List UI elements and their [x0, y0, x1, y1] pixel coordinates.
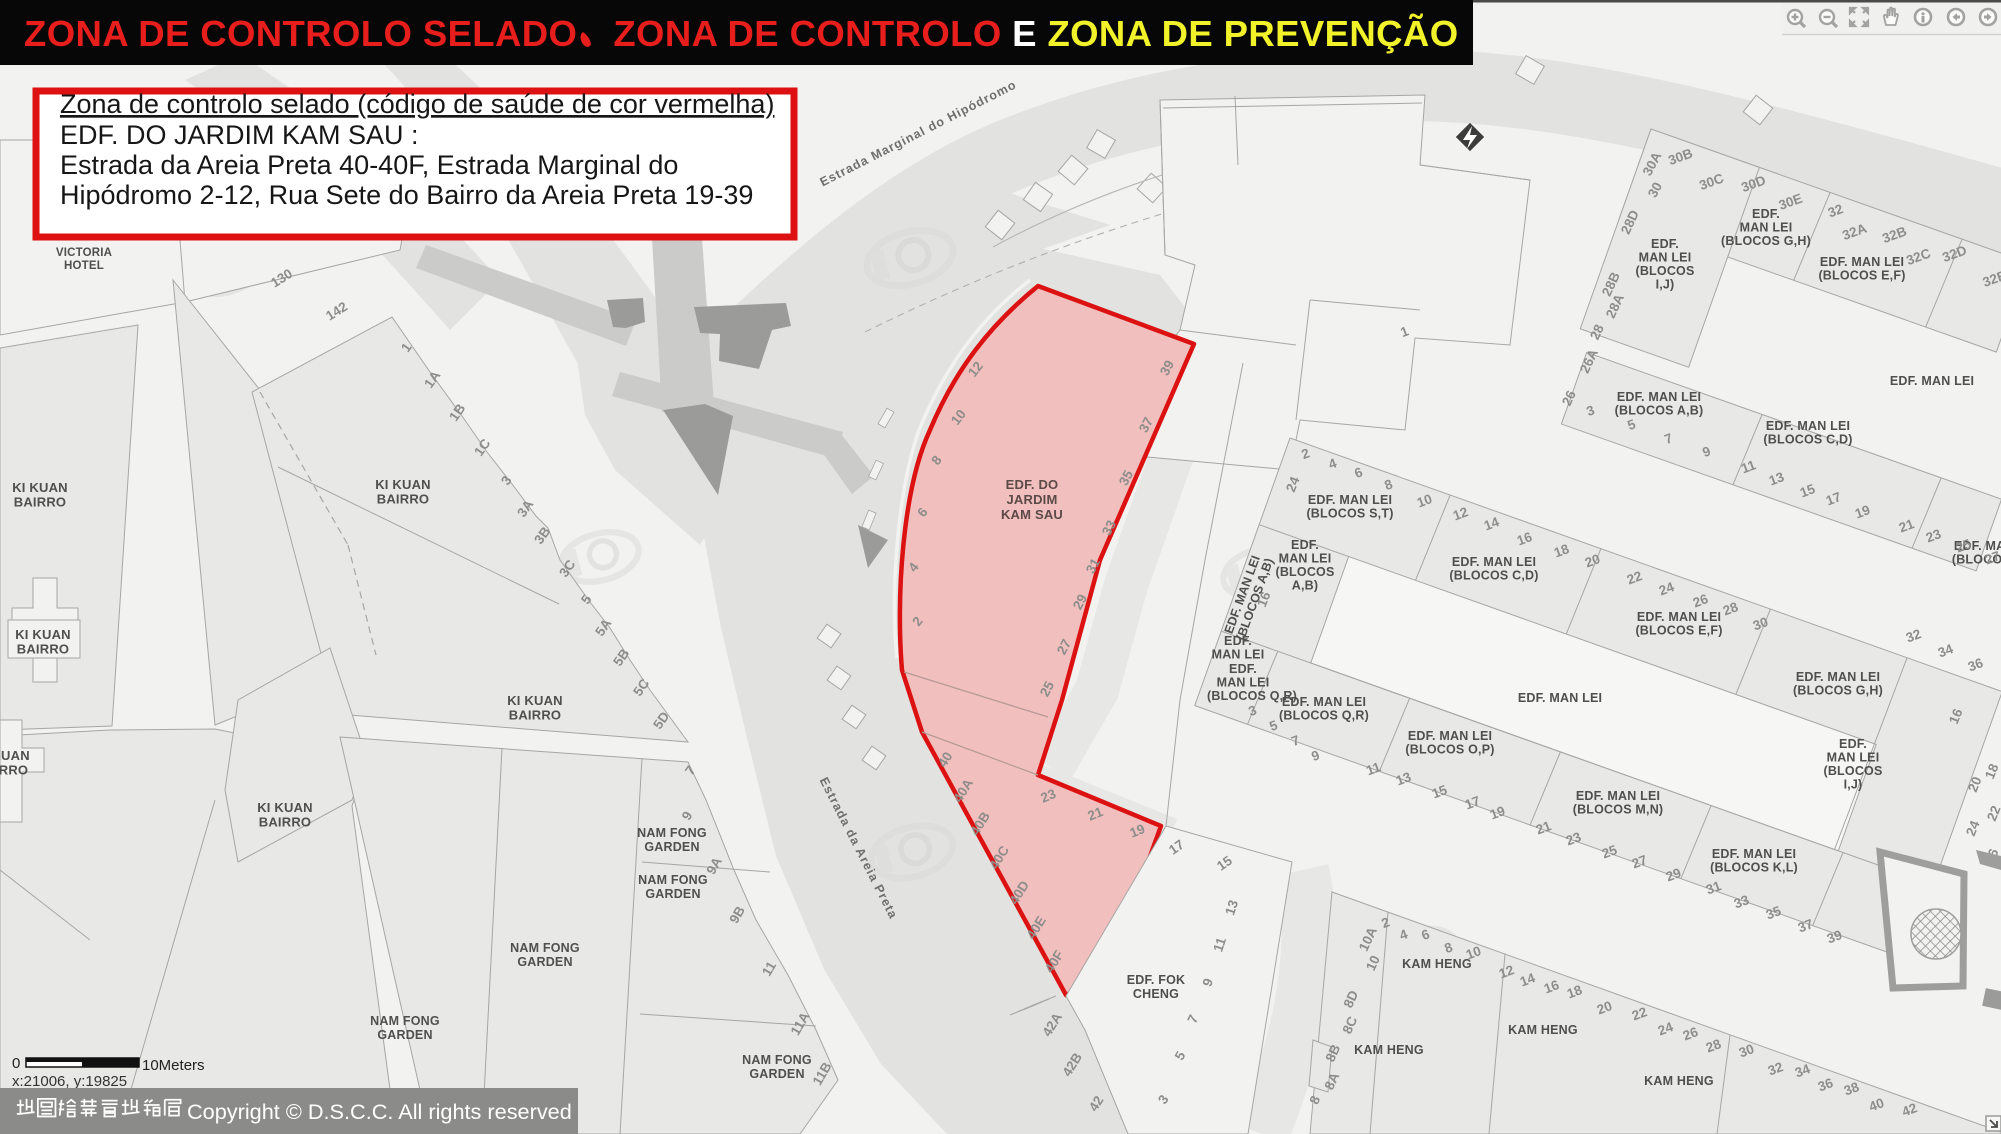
svg-text:KI KUANBAIRRO: KI KUANBAIRRO: [375, 477, 431, 507]
svg-text:KI KUANBAIRRO: KI KUANBAIRRO: [507, 693, 563, 723]
svg-text:EDF. MAN LEI(BLOCOS C,D): EDF. MAN LEI(BLOCOS C,D): [1763, 419, 1852, 447]
svg-text:10Meters: 10Meters: [142, 1057, 205, 1074]
svg-text:NAM FONGGARDEN: NAM FONGGARDEN: [638, 873, 708, 901]
svg-text:NAM FONGGARDEN: NAM FONGGARDEN: [510, 941, 580, 969]
svg-text:ZONA DE CONTROLO SELADOZONA DE: ZONA DE CONTROLO SELADOZONA DE CONTROLO …: [24, 12, 1458, 54]
svg-text:EDF. DOJARDIMKAM SAU: EDF. DOJARDIMKAM SAU: [1001, 477, 1063, 522]
svg-text:KI KUANBAIRRO: KI KUANBAIRRO: [0, 748, 30, 778]
svg-text:Zona de controlo selado (códig: Zona de controlo selado (código de saúde…: [60, 89, 774, 119]
svg-text:EDF. MAN LEI(BLOCOS E,F): EDF. MAN LEI(BLOCOS E,F): [1818, 255, 1905, 283]
svg-text:EDF. MAN LEI(BLOCOS S,T): EDF. MAN LEI(BLOCOS S,T): [1306, 493, 1393, 521]
svg-text:NAM FONGGARDEN: NAM FONGGARDEN: [637, 826, 707, 854]
svg-text:EDF. MAN LEI(BLOCOS G,H): EDF. MAN LEI(BLOCOS G,H): [1793, 670, 1883, 698]
svg-text:KAM HENG: KAM HENG: [1402, 957, 1472, 971]
svg-text:EDF. DO JARDIM KAM SAU :: EDF. DO JARDIM KAM SAU :: [60, 120, 419, 150]
svg-text:EDF. MAN LEI(BLOCOS Q,R): EDF. MAN LEI(BLOCOS Q,R): [1279, 695, 1369, 723]
svg-text:EDF. FOKCHENG: EDF. FOKCHENG: [1127, 973, 1186, 1001]
svg-text:x:21006, y:19825: x:21006, y:19825: [12, 1073, 127, 1090]
svg-text:KAM HENG: KAM HENG: [1644, 1074, 1714, 1088]
svg-text:EDF. MAN LEI(BLOCOS E,F): EDF. MAN LEI(BLOCOS E,F): [1635, 610, 1722, 638]
svg-text:EDF. MAN LEI: EDF. MAN LEI: [1518, 691, 1602, 705]
svg-text:EDF. MAN LEI(BLOCOS C,D): EDF. MAN LEI(BLOCOS C,D): [1449, 555, 1538, 583]
svg-text:Estrada da Areia Preta 40-40F,: Estrada da Areia Preta 40-40F, Estrada M…: [60, 150, 678, 180]
svg-text:EDF. MAN LEI(BLOCOS O,P): EDF. MAN LEI(BLOCOS O,P): [1405, 729, 1494, 757]
svg-text:KI KUANBAIRRO: KI KUANBAIRRO: [15, 627, 71, 657]
svg-text:VICTORIAHOTEL: VICTORIAHOTEL: [56, 247, 112, 272]
svg-text:Hipódromo 2-12, Rua Sete do Ba: Hipódromo 2-12, Rua Sete do Bairro da Ar…: [60, 180, 753, 210]
svg-text:EDF. MAN LEI(BLOCOS M,N): EDF. MAN LEI(BLOCOS M,N): [1573, 789, 1664, 817]
svg-text:NAM FONGGARDEN: NAM FONGGARDEN: [370, 1014, 440, 1042]
svg-text:KI KUANBAIRRO: KI KUANBAIRRO: [12, 480, 68, 510]
svg-text:KAM HENG: KAM HENG: [1354, 1043, 1424, 1057]
svg-text:NAM FONGGARDEN: NAM FONGGARDEN: [742, 1053, 812, 1081]
svg-text:Copyright © D.S.C.C. All right: Copyright © D.S.C.C. All rights reserved: [187, 1099, 572, 1124]
svg-text:EDF. MAN LEI(BLOCOS A,B): EDF. MAN LEI(BLOCOS A,B): [1615, 390, 1704, 418]
svg-text:KAM HENG: KAM HENG: [1508, 1023, 1578, 1037]
svg-text:0: 0: [12, 1055, 20, 1072]
svg-text:EDF. MAN LEI: EDF. MAN LEI: [1890, 374, 1974, 388]
svg-text:KI KUANBAIRRO: KI KUANBAIRRO: [257, 800, 313, 830]
svg-text:EDF. MAN LEI(BLOCOS K,L): EDF. MAN LEI(BLOCOS K,L): [1710, 847, 1798, 875]
